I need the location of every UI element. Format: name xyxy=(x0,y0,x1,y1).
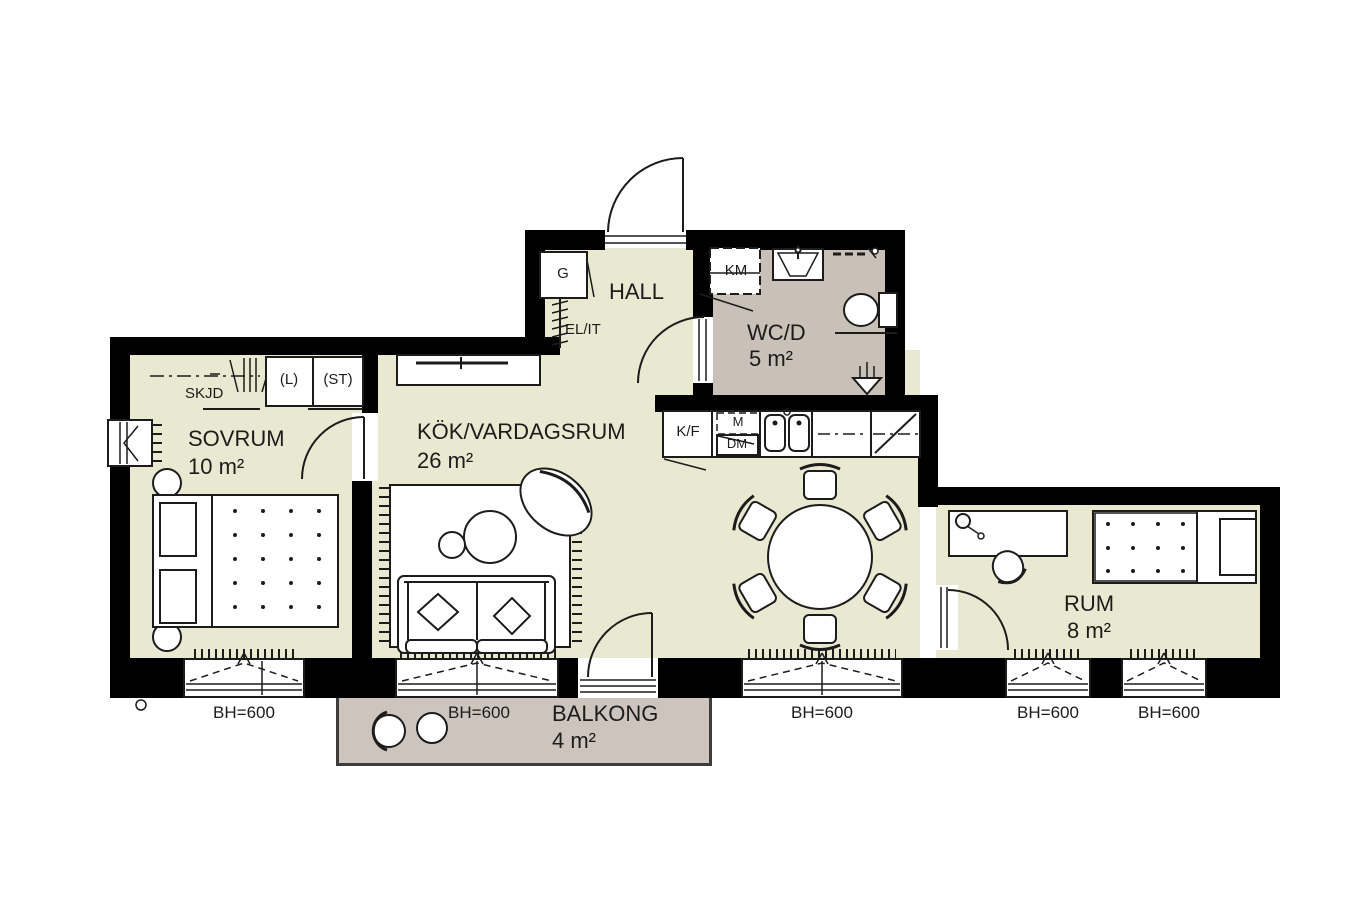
el-it-label: EL/IT xyxy=(565,322,601,339)
floor-plan: SOVRUM 10 m² KÖK/VARDAGSRUM 26 m² HALL W… xyxy=(0,0,1366,911)
dining-table xyxy=(768,505,872,609)
entry-door xyxy=(605,158,686,243)
room-area: 8 m² xyxy=(1067,619,1111,643)
wc-name: WC/D xyxy=(747,321,806,345)
kitchen-area: 26 m² xyxy=(417,449,473,473)
closet-st-label: (ST) xyxy=(323,372,352,389)
bedroom-side-window xyxy=(108,420,152,466)
microwave-label: M xyxy=(733,415,744,429)
bedroom-area: 10 m² xyxy=(188,455,244,479)
exterior-drain-mark xyxy=(136,700,146,710)
balcony-table xyxy=(417,713,447,743)
bed-pillow-2 xyxy=(160,570,196,623)
wc-door xyxy=(638,294,753,383)
towel-rail xyxy=(833,248,878,258)
bedroom-furniture xyxy=(153,469,338,651)
bh-label-bedroom: BH=600 xyxy=(213,704,275,723)
dishwasher-label: DM xyxy=(727,437,747,451)
washing-machine-label: KM xyxy=(725,263,748,280)
room-door xyxy=(936,585,1008,650)
bedroom-door xyxy=(302,413,378,481)
wc-area: 5 m² xyxy=(749,347,793,371)
kitchen-name: KÖK/VARDAGSRUM xyxy=(417,420,626,444)
balcony-name: BALKONG xyxy=(552,702,658,726)
single-bed-pillow xyxy=(1220,519,1256,575)
bh-label-room-1: BH=600 xyxy=(1017,704,1079,723)
bh-label-living: BH=600 xyxy=(448,704,510,723)
balcony-area: 4 m² xyxy=(552,729,596,753)
dining-set xyxy=(730,465,910,650)
room-furniture xyxy=(949,511,1256,588)
bedroom-window xyxy=(184,653,304,697)
fridge-freezer-label: K/F xyxy=(676,424,699,441)
nightstand-top xyxy=(153,469,181,497)
closet-l-label: (L) xyxy=(280,372,298,389)
skjd-label: SKJD xyxy=(185,386,223,403)
bed-pillow-1 xyxy=(160,503,196,556)
bh-label-room-2: BH=600 xyxy=(1138,704,1200,723)
living-window xyxy=(396,653,558,697)
floor-drain xyxy=(853,362,881,394)
tv-bench xyxy=(397,355,540,385)
sofa xyxy=(398,576,555,653)
dining-window xyxy=(742,653,902,697)
room-window-2 xyxy=(1122,653,1206,697)
balcony-furniture xyxy=(373,712,447,750)
g-closet-label: G xyxy=(557,266,569,283)
bh-label-dining: BH=600 xyxy=(791,704,853,723)
room-name: RUM xyxy=(1064,592,1114,616)
kitchen-counter xyxy=(663,409,920,470)
bedroom-name: SOVRUM xyxy=(188,427,285,451)
washbasin xyxy=(773,245,823,280)
toilet xyxy=(835,293,897,333)
fridge-door-swing xyxy=(664,459,706,470)
hall-name: HALL xyxy=(609,280,664,304)
room-window-1 xyxy=(1006,653,1090,697)
balcony-door xyxy=(578,613,658,698)
